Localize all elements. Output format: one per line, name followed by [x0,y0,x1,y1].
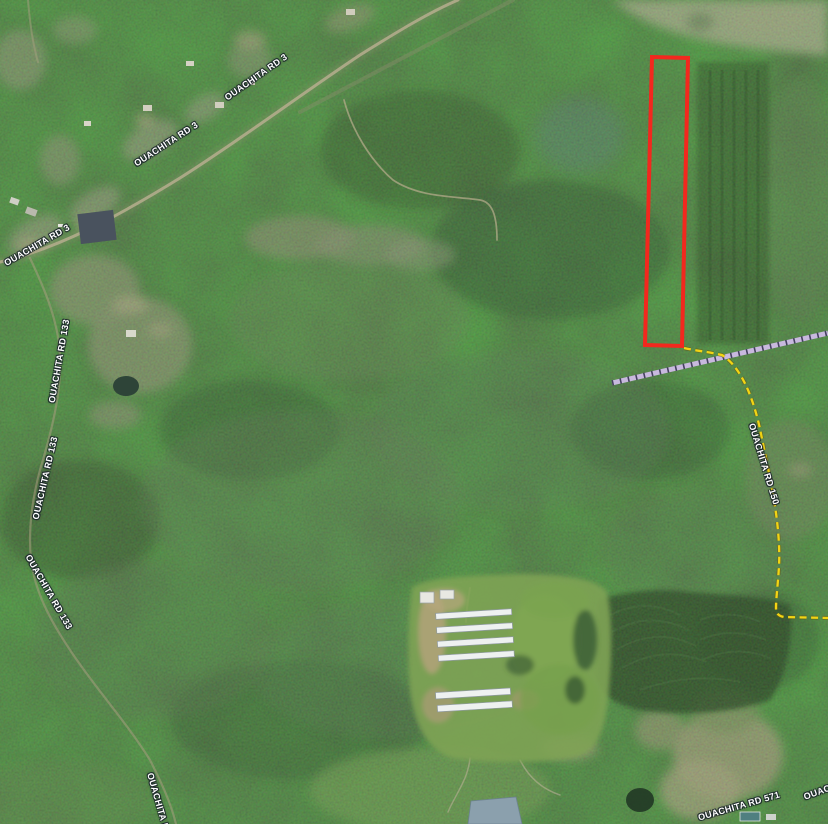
pond-farm-bottom [468,797,522,824]
pond-left [113,376,139,396]
satellite-map-viewport[interactable]: OUACHITA RD 3 OUACHITA RD 3 OUACHITA RD … [0,0,828,824]
satellite-canvas[interactable] [0,0,828,824]
pond-dark-bottom [626,788,654,812]
farm-shed-a [420,592,434,603]
poultry-farm [408,574,611,762]
farm-shed-b [440,590,454,599]
